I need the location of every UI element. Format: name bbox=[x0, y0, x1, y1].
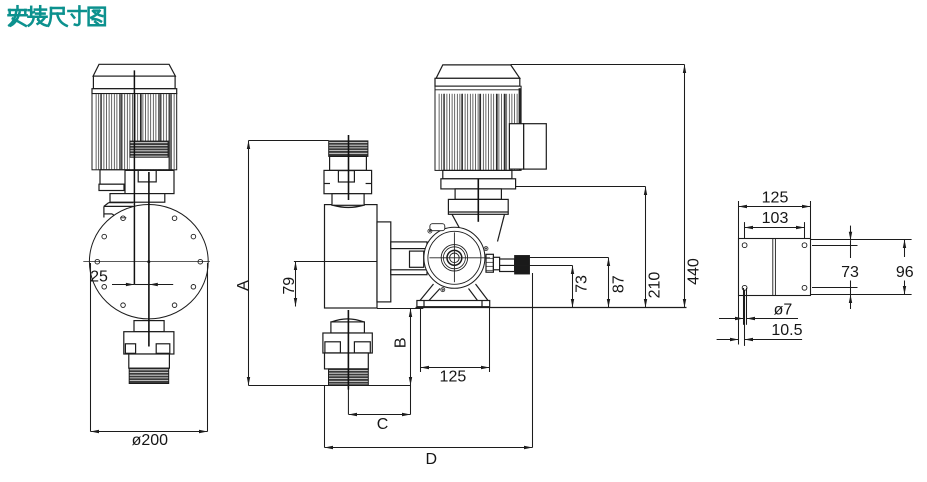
svg-text:125: 125 bbox=[762, 189, 789, 206]
svg-text:125: 125 bbox=[440, 369, 467, 386]
svg-text:73: 73 bbox=[841, 264, 859, 281]
svg-text:96: 96 bbox=[896, 264, 914, 281]
svg-text:B: B bbox=[392, 337, 409, 348]
svg-text:ø200: ø200 bbox=[132, 432, 169, 449]
svg-text:C: C bbox=[377, 416, 389, 433]
svg-text:440: 440 bbox=[686, 258, 703, 285]
svg-text:73: 73 bbox=[574, 275, 591, 293]
svg-text:10.5: 10.5 bbox=[771, 322, 802, 339]
svg-text:210: 210 bbox=[646, 272, 663, 299]
svg-text:A: A bbox=[235, 280, 252, 291]
svg-text:ø7: ø7 bbox=[774, 301, 793, 318]
svg-text:25: 25 bbox=[90, 269, 108, 286]
svg-text:79: 79 bbox=[281, 277, 298, 295]
svg-text:103: 103 bbox=[762, 210, 789, 227]
svg-text:87: 87 bbox=[610, 275, 627, 293]
svg-text:D: D bbox=[426, 451, 438, 468]
